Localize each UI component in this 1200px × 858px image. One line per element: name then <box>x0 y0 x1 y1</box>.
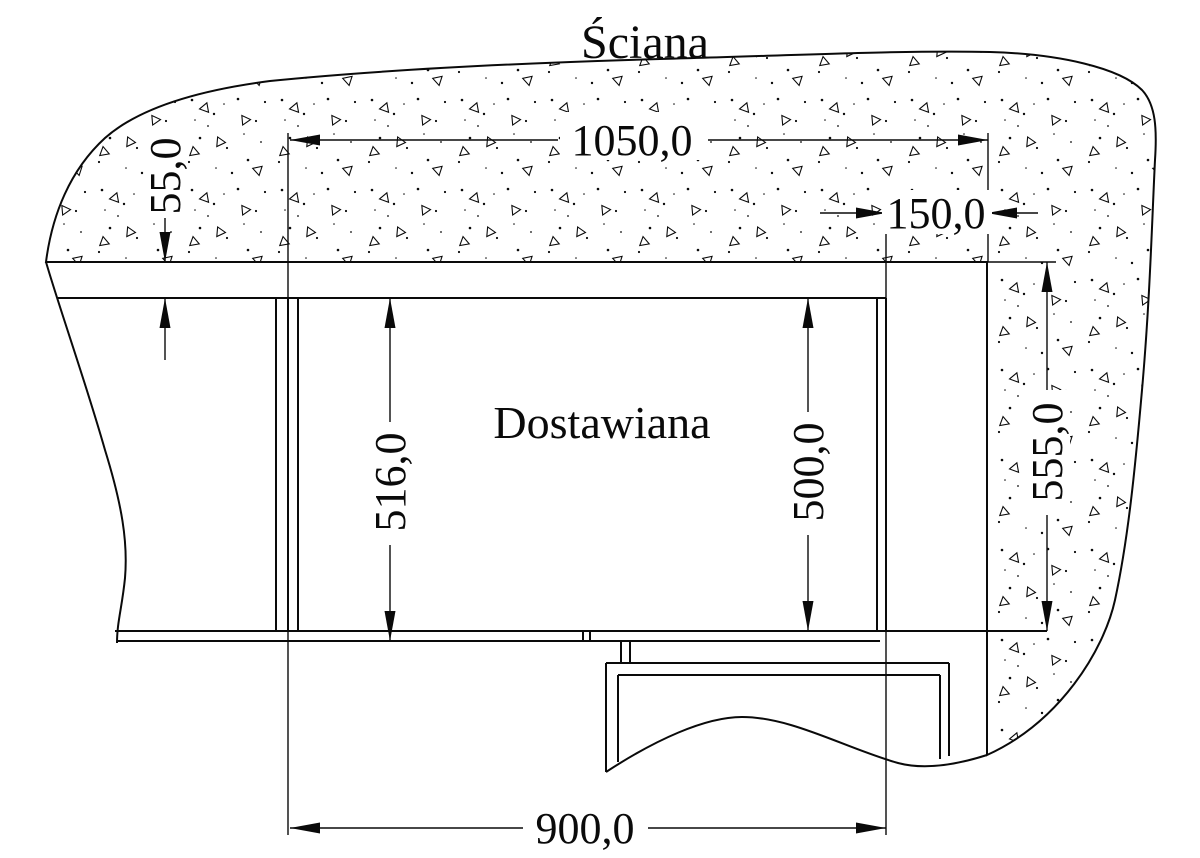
dimension-left-height: 516,0 <box>366 298 415 641</box>
dimension-top-width-label: 1050,0 <box>572 116 693 165</box>
cabinet-lines <box>58 298 886 631</box>
dimension-wall-offset-label: 55,0 <box>141 138 190 215</box>
technical-drawing-canvas: 1050,0 55,0 150,0 516,0 500,0 <box>0 0 1200 858</box>
dimension-right-height-label: 555,0 <box>1023 403 1072 502</box>
dimension-inner-height: 500,0 <box>784 298 833 631</box>
wall-title: Ściana <box>581 15 709 69</box>
lower-unit-lines <box>606 641 949 772</box>
dimension-right-gap-label: 150,0 <box>887 189 986 238</box>
technical-drawing-page: 1050,0 55,0 150,0 516,0 500,0 <box>0 0 1200 858</box>
cabinet-label: Dostawiana <box>493 397 710 448</box>
dimension-inner-height-label: 500,0 <box>784 423 833 522</box>
counter-lines <box>115 631 1047 641</box>
break-lines <box>46 262 987 772</box>
dimension-bottom-width: 900,0 <box>290 804 886 853</box>
dimension-bottom-width-label: 900,0 <box>536 804 635 853</box>
dimension-left-height-label: 516,0 <box>366 433 415 532</box>
